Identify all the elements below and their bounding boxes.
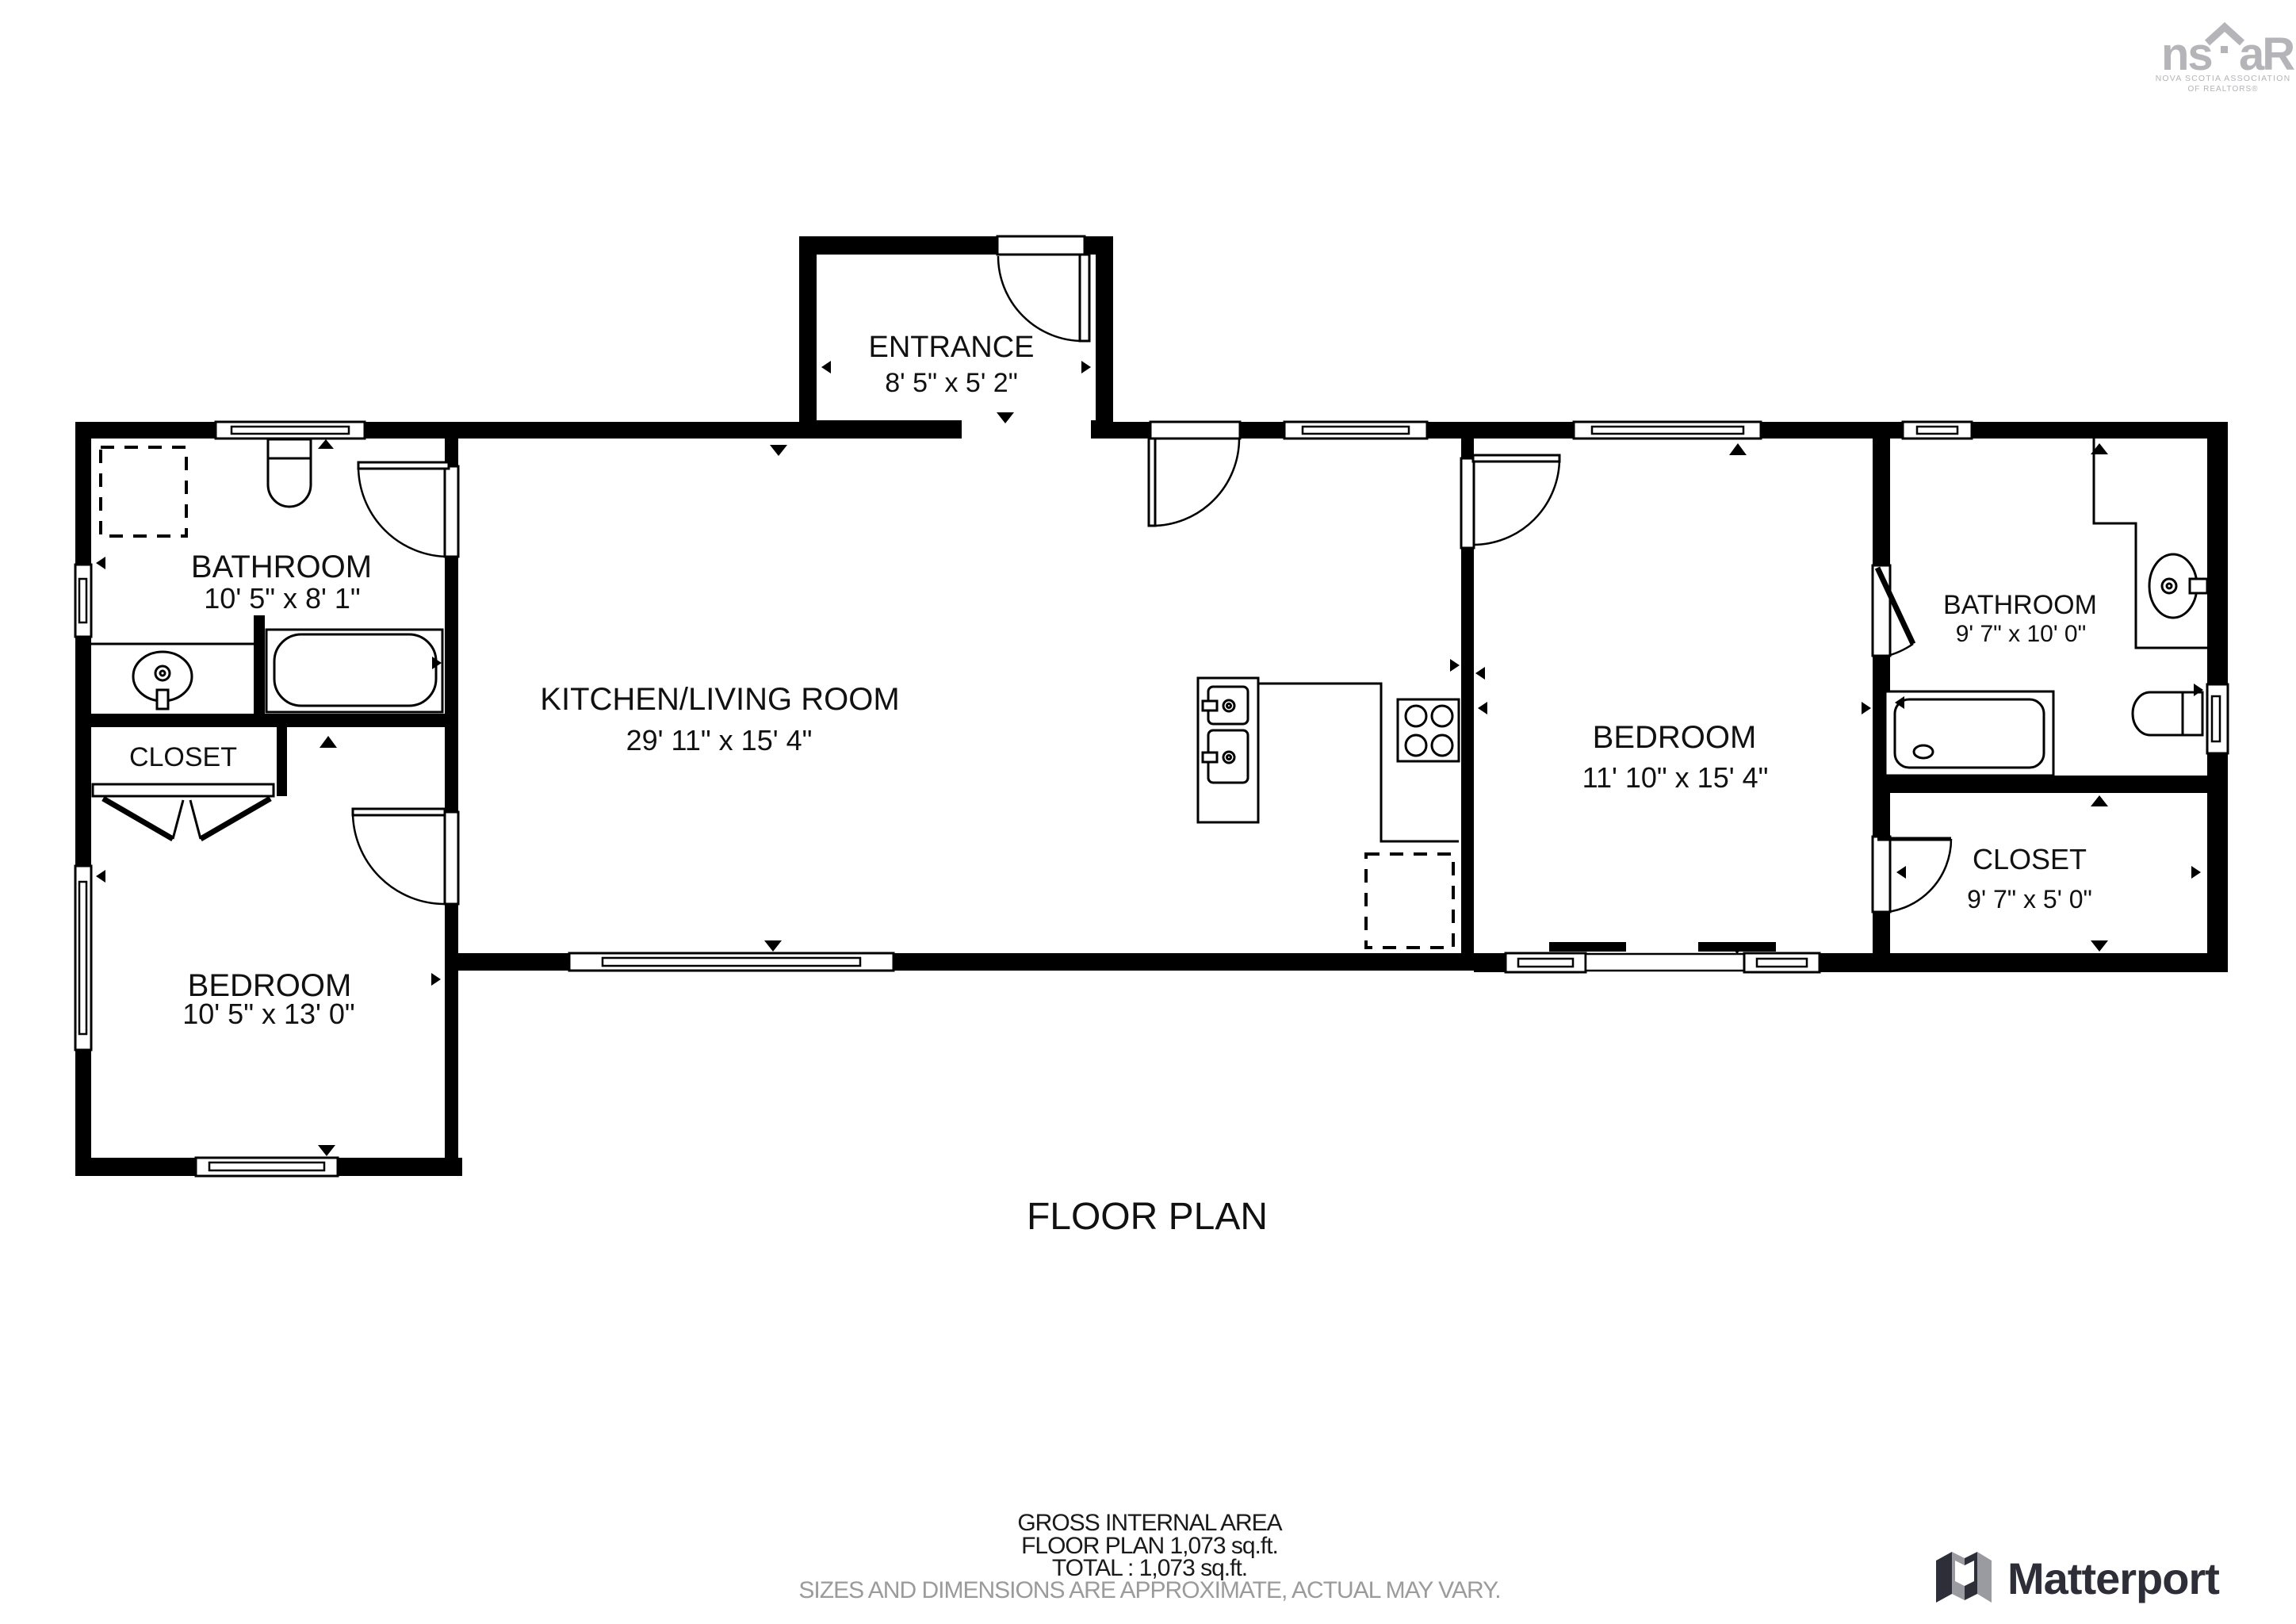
shower-icon xyxy=(1885,691,2053,776)
door-icon xyxy=(1149,422,1240,526)
arrow-down-icon xyxy=(764,940,782,952)
window-icon xyxy=(1744,953,1820,972)
floor-plan-svg: ENTRANCE 8' 5" x 5' 2" BATHROOM 10' 5" x… xyxy=(0,0,2296,1624)
room-dims-bedroom-right: 11' 10" x 15' 4" xyxy=(1582,761,1769,794)
arrow-left-icon xyxy=(821,361,831,373)
nsar-logo-ar-text: aR xyxy=(2239,29,2294,80)
door-icon xyxy=(1873,837,1951,913)
door-icon xyxy=(358,462,458,557)
arrow-up-icon xyxy=(320,736,337,748)
arrow-up-icon xyxy=(1729,443,1747,455)
door-icon xyxy=(1873,565,1913,657)
room-label-entrance: ENTRANCE xyxy=(868,331,1034,364)
arrow-right-icon xyxy=(431,973,441,986)
room-label-closet-left: CLOSET xyxy=(129,742,237,772)
kitchen-sink-icon xyxy=(1198,678,1258,822)
room-dims-bathroom-left: 10' 5" x 8' 1" xyxy=(204,582,360,615)
matterport-wordmark: Matterport xyxy=(2007,1553,2219,1603)
window-icon xyxy=(75,866,91,1050)
room-label-bathroom-left: BATHROOM xyxy=(191,550,372,584)
arrow-right-icon xyxy=(1081,361,1091,373)
sink-icon xyxy=(2149,554,2207,618)
window-icon xyxy=(569,953,894,971)
arrow-right-icon xyxy=(1450,659,1460,672)
nsar-logo: ns aR NOVA SCOTIA ASSOCIATION OF REALTOR… xyxy=(2156,27,2295,94)
room-label-bedroom-right: BEDROOM xyxy=(1593,720,1757,755)
footer-text: GROSS INTERNAL AREA FLOOR PLAN 1,073 sq.… xyxy=(798,1510,1500,1603)
window-icon xyxy=(75,565,91,637)
appliance-area-icon xyxy=(1366,854,1453,948)
door-icon xyxy=(1461,455,1559,548)
window-icon xyxy=(2207,684,2228,753)
shower-area-icon xyxy=(101,447,186,536)
stove-icon xyxy=(1398,699,1459,761)
matterport-icon xyxy=(1936,1552,1992,1603)
room-label-bathroom-right: BATHROOM xyxy=(1943,590,2097,620)
door-icon xyxy=(997,236,1089,341)
sink-icon xyxy=(133,652,192,709)
window-icon xyxy=(216,422,365,439)
toilet-icon xyxy=(2133,692,2202,735)
arrow-left-icon xyxy=(96,557,105,569)
matterport-logo: Matterport xyxy=(1936,1552,2219,1603)
bifold-door-icon xyxy=(93,784,274,839)
nsar-logo-ns-text: ns xyxy=(2161,29,2212,80)
nsar-subtitle-2: OF REALTORS® xyxy=(2187,85,2258,94)
arrow-left-icon xyxy=(1475,667,1485,680)
arrow-left-icon xyxy=(1478,702,1487,714)
room-label-closet-right: CLOSET xyxy=(1973,843,2087,875)
bathtub-icon xyxy=(266,630,442,712)
nsar-subtitle-1: NOVA SCOTIA ASSOCIATION xyxy=(2156,74,2291,83)
window-icon xyxy=(1506,953,1586,972)
nsar-roof-dot-icon xyxy=(2221,46,2228,53)
door-icon xyxy=(353,809,458,904)
disclaimer-text: SIZES AND DIMENSIONS ARE APPROXIMATE, AC… xyxy=(798,1577,1500,1603)
windows xyxy=(75,422,2228,1176)
room-dims-bedroom-left: 10' 5" x 13' 0" xyxy=(182,998,354,1030)
arrow-down-icon xyxy=(997,412,1014,423)
room-dims-kitchen-living: 29' 11" x 15' 4" xyxy=(626,724,813,756)
window-icon xyxy=(1574,422,1761,439)
window-icon xyxy=(1903,422,1972,439)
room-label-kitchen-living: KITCHEN/LIVING ROOM xyxy=(540,682,899,717)
page-title: FLOOR PLAN xyxy=(1027,1196,1268,1238)
arrow-left-icon xyxy=(96,870,105,883)
room-dims-closet-right: 9' 7" x 5' 0" xyxy=(1967,885,2092,913)
window-icon xyxy=(196,1158,338,1176)
arrow-up-icon xyxy=(2091,795,2108,806)
arrow-down-icon xyxy=(2091,940,2108,952)
arrow-left-icon xyxy=(1896,866,1906,879)
room-dims-entrance: 8' 5" x 5' 2" xyxy=(885,368,1018,398)
nsar-roof-icon xyxy=(2207,27,2242,43)
arrow-down-icon xyxy=(770,445,787,456)
vanity-counter xyxy=(2094,439,2207,648)
arrow-right-icon xyxy=(1862,702,1871,714)
window-icon xyxy=(1284,422,1427,439)
arrow-right-icon xyxy=(2191,866,2201,879)
floor-plan-page: { "title": "FLOOR PLAN", "rooms": [ {"na… xyxy=(0,0,2296,1624)
toilet-icon xyxy=(268,439,311,507)
room-dims-bathroom-right: 9' 7" x 10' 0" xyxy=(1956,621,2087,647)
arrow-up-icon xyxy=(318,439,334,449)
arrow-down-icon xyxy=(318,1145,335,1156)
